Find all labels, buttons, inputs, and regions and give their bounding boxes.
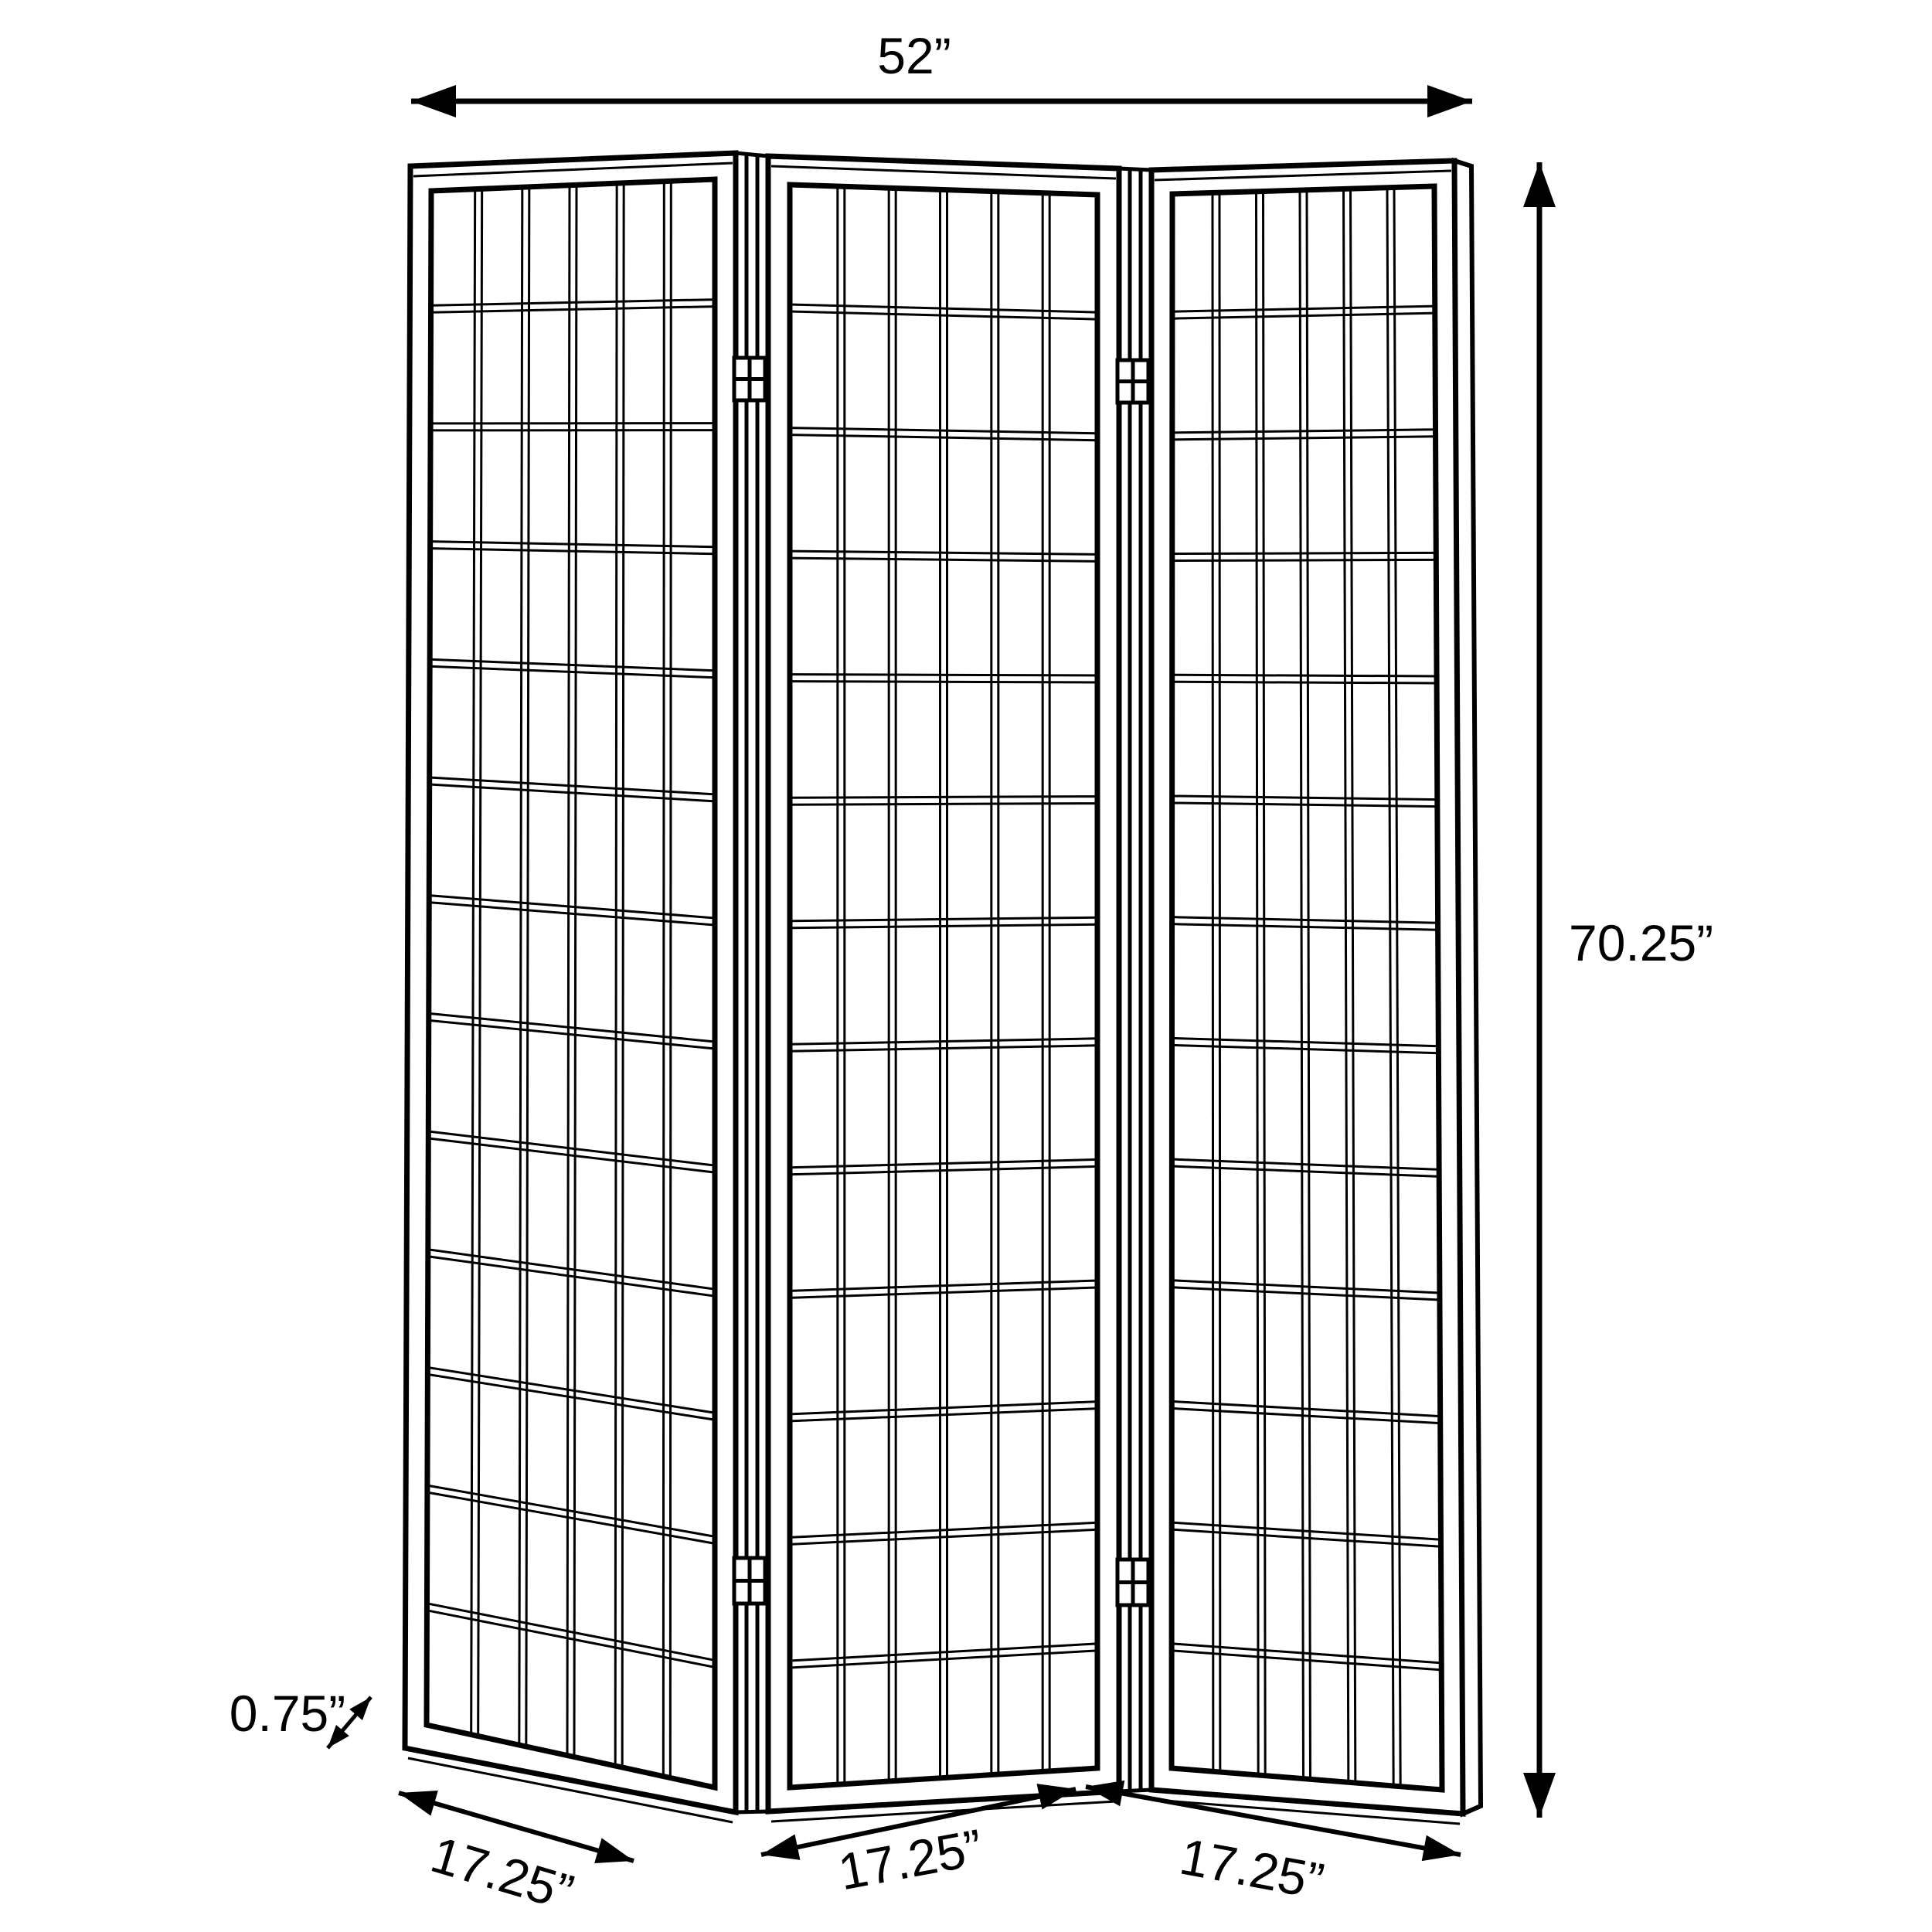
panel3-width-label: 17.25” [1175, 1828, 1328, 1910]
panel-left [405, 153, 736, 1822]
panel-right [1151, 161, 1481, 1824]
diagram-canvas: 52” 70.25” 0.75” 17.25” 17.25” 17.25” [0, 0, 1932, 1932]
room-divider-dimension-diagram: 52” 70.25” 0.75” 17.25” 17.25” 17.25” [0, 0, 1932, 1932]
panel-middle [768, 156, 1119, 1821]
height-dimension-label: 70.25” [1569, 914, 1713, 971]
thickness-dimension-label: 0.75” [230, 1685, 345, 1742]
width-dimension-label: 52” [877, 27, 951, 84]
panel2-width-label: 17.25” [834, 1818, 986, 1901]
